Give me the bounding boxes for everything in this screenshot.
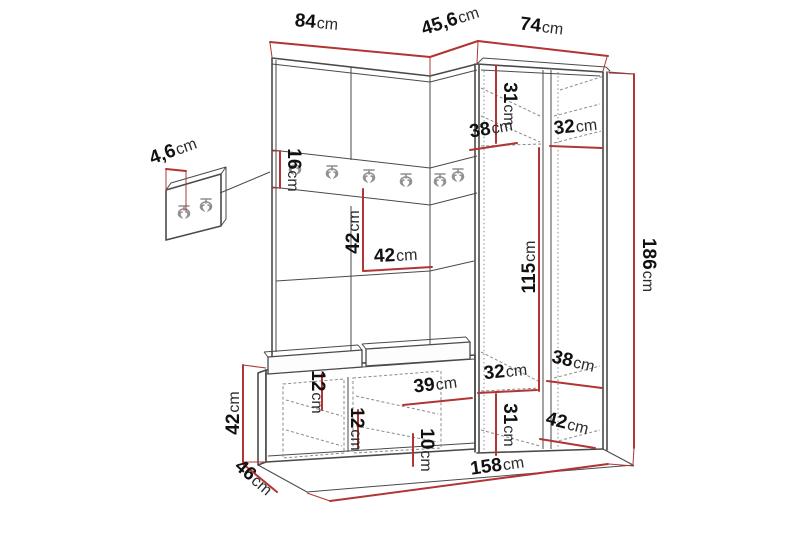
dim-top-corner-width: 45,6cm (419, 2, 482, 57)
svg-text:45,6cm: 45,6cm (419, 2, 482, 40)
coat-hook-icon (364, 170, 375, 181)
hook-rail-bottom (272, 187, 477, 205)
svg-text:4,6cm: 4,6cm (147, 133, 200, 169)
svg-text:186cm: 186cm (638, 238, 659, 292)
dim-wardrobe-lower-height: 31cm (496, 394, 520, 455)
svg-text:16cm: 16cm (283, 148, 304, 191)
dimension-diagram-canvas: 84cm 45,6cm 74cm 4,6cm 16cm 42cm 42cm 31… (0, 0, 800, 533)
svg-text:84cm: 84cm (294, 10, 339, 35)
svg-text:38cm: 38cm (550, 347, 597, 377)
svg-text:115cm: 115cm (519, 241, 540, 294)
svg-text:12cm: 12cm (346, 407, 367, 450)
coat-hook-icon (435, 174, 446, 185)
dim-wardrobe-lower-depth: 38cm (547, 347, 602, 388)
coat-hook-icon (327, 166, 338, 177)
dim-open-shelf-width: 42cm (364, 244, 432, 271)
svg-text:31cm: 31cm (499, 403, 520, 446)
hook-panel-detail (166, 167, 270, 240)
dim-wardrobe-base-depth: 42cm (540, 408, 595, 448)
dim-total-width: 158cm (330, 451, 608, 501)
dim-bench-shelf-height: 12cm (346, 407, 367, 450)
hook-rail-hooks (290, 162, 464, 185)
dim-open-section-height: 42cm (343, 189, 364, 271)
coat-hook-icon (401, 174, 412, 185)
dim-hook-panel-depth: 4,6cm (147, 133, 200, 171)
svg-text:10cm: 10cm (416, 428, 437, 471)
dim-top-left-width: 84cm (270, 10, 430, 57)
coat-hook-icon (453, 169, 464, 180)
furniture-dimension-drawing: 84cm 45,6cm 74cm 4,6cm 16cm 42cm 42cm 31… (0, 0, 800, 533)
dim-bench-top-height: 12cm (307, 370, 328, 413)
svg-text:12cm: 12cm (307, 370, 328, 413)
svg-text:32cm: 32cm (483, 359, 528, 384)
dim-top-right-width: 74cm (478, 13, 608, 56)
dim-total-height: 186cm (634, 74, 659, 448)
dim-bench-height: 42cm (223, 365, 244, 462)
leader-line (220, 172, 270, 193)
dim-hook-rail-height: 16cm (280, 148, 304, 191)
svg-text:42cm: 42cm (373, 244, 418, 267)
svg-text:42cm: 42cm (343, 210, 364, 253)
svg-text:74cm: 74cm (519, 13, 565, 39)
wardrobe-floor-edge (603, 449, 633, 465)
dim-wardrobe-middle-height: 115cm (519, 148, 540, 391)
svg-text:42cm: 42cm (223, 391, 244, 434)
svg-text:32cm: 32cm (553, 114, 598, 139)
